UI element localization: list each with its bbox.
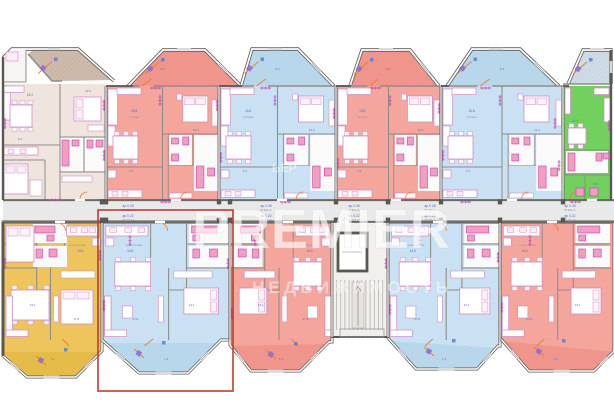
svg-text:ap 0.22: ap 0.22 [122,214,133,218]
svg-text:13.1: 13.1 [463,303,469,307]
svg-text:ap 0.28: ap 0.28 [564,204,575,208]
svg-text:50 332 m²: 50 332 m² [564,209,575,212]
svg-text:14.6: 14.6 [77,249,83,253]
svg-text:50 332 m²: 50 332 m² [122,219,133,222]
svg-text:12.4: 12.4 [309,128,315,132]
svg-text:8.1: 8.1 [18,137,23,141]
svg-text:14.1: 14.1 [572,119,578,123]
svg-text:14.6: 14.6 [127,249,133,253]
svg-text:6.4: 6.4 [275,67,280,71]
svg-text:12.4: 12.4 [417,128,423,132]
svg-text:17.9: 17.9 [73,317,79,321]
svg-text:ap 0.22: ap 0.22 [564,214,575,218]
svg-text:PREMIER: PREMIER [192,197,450,260]
svg-text:50 332 m²: 50 332 m² [564,219,575,222]
svg-text:3.9: 3.9 [593,182,598,186]
svg-text:кухня-гостиная: кухня-гостиная [520,244,537,247]
svg-text:12.0: 12.0 [85,89,91,93]
svg-text:7.2: 7.2 [129,169,134,173]
svg-text:гостиная: гостиная [357,116,367,119]
svg-text:17.9: 17.9 [526,317,532,321]
svg-text:13.1: 13.1 [189,303,195,307]
svg-text:12.4: 12.4 [534,128,540,132]
svg-text:12.4: 12.4 [193,128,199,132]
svg-text:6.4: 6.4 [386,67,391,71]
svg-text:15.8: 15.8 [468,109,474,113]
svg-text:6.4: 6.4 [160,67,165,71]
svg-text:17.9: 17.9 [414,317,420,321]
svg-text:14.6: 14.6 [521,249,527,253]
svg-text:18.2: 18.2 [27,93,33,97]
svg-text:17.9: 17.9 [303,317,309,321]
svg-text:гостиная: гостиная [467,116,477,119]
svg-text:17.9: 17.9 [132,317,138,321]
svg-text:7.1: 7.1 [442,357,447,361]
svg-text:13.1: 13.1 [30,303,36,307]
svg-text:ЬЕР: ЬЕР [272,161,297,175]
svg-text:15.8: 15.8 [245,109,251,113]
svg-text:7.1: 7.1 [279,357,284,361]
svg-text:6.4: 6.4 [500,67,505,71]
svg-text:гостиная: гостиная [243,116,253,119]
svg-text:7.1: 7.1 [50,357,55,361]
svg-text:7.1: 7.1 [553,357,558,361]
svg-text:13.1: 13.1 [575,303,581,307]
svg-text:кухня-гостиная: кухня-гостиная [69,244,86,247]
svg-text:15.8: 15.8 [131,109,137,113]
svg-text:15.8: 15.8 [359,109,365,113]
svg-text:13.1: 13.1 [258,303,264,307]
svg-text:7.1: 7.1 [164,357,169,361]
svg-text:7.2: 7.2 [357,169,362,173]
svg-text:гостиная: гостиная [129,116,139,119]
svg-text:ap 0.28: ap 0.28 [122,204,133,208]
svg-text:7.2: 7.2 [243,169,248,173]
svg-text:кухня-гостиная: кухня-гостиная [126,244,143,247]
svg-text:7.2: 7.2 [466,169,471,173]
